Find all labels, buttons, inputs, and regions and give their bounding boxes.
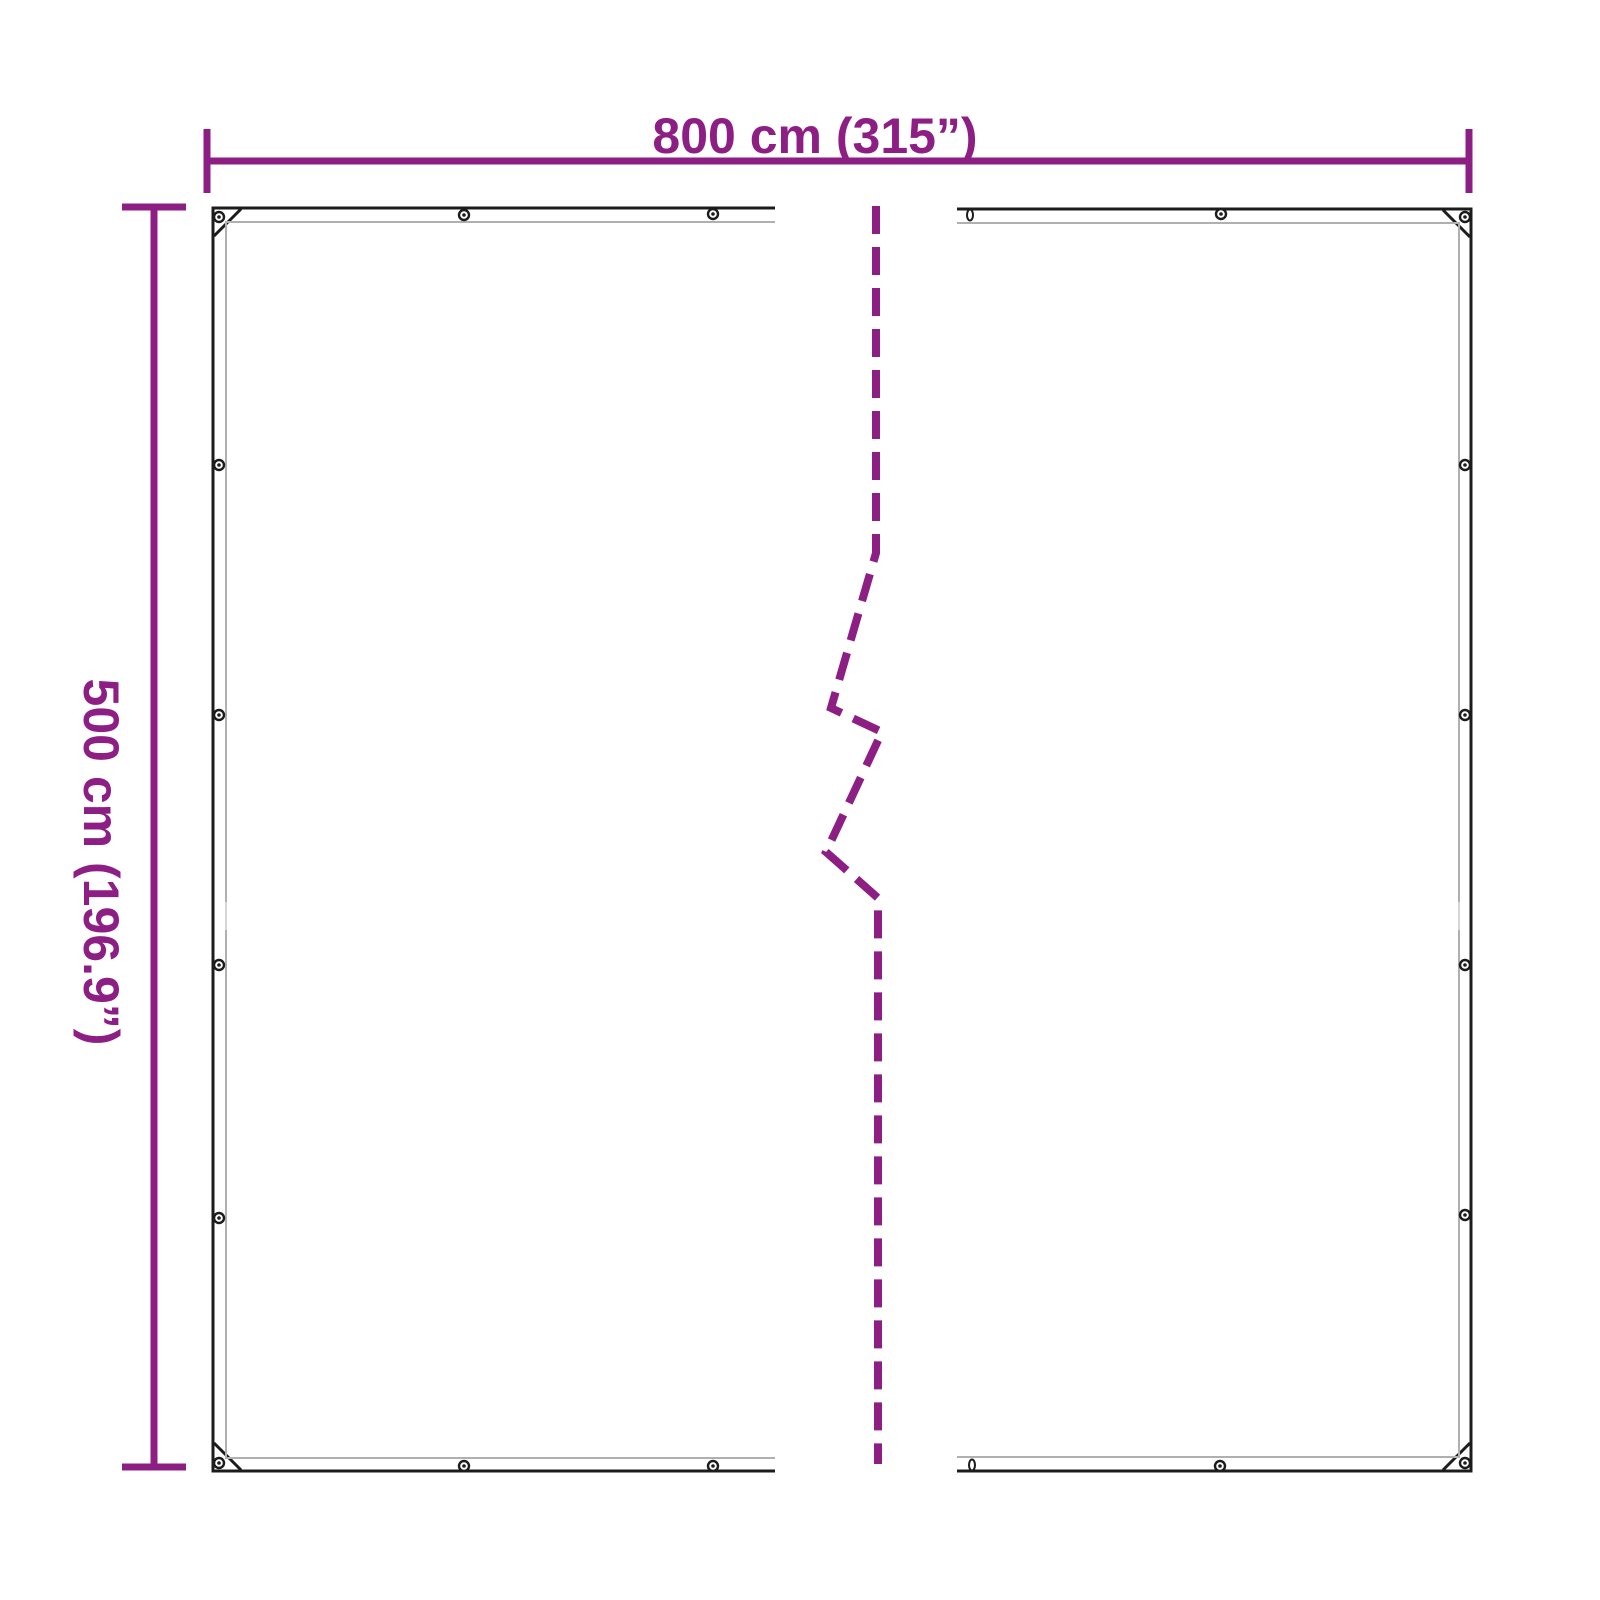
grommet <box>708 209 718 219</box>
grommet <box>1460 1210 1470 1220</box>
break-line <box>826 206 882 1464</box>
grommet <box>214 460 224 470</box>
tarp-right-hem <box>957 223 1459 1457</box>
tarp-left-outline <box>213 208 775 1471</box>
grommet <box>1460 460 1470 470</box>
tarp-right-panel <box>957 209 1471 1471</box>
grommet <box>214 1213 224 1223</box>
tarp-left-hem-line <box>226 222 775 1458</box>
diagram-canvas: 800 cm (315”) 500 cm (196.9”) <box>0 0 1600 1600</box>
grommet <box>214 960 224 970</box>
grommet <box>214 710 224 720</box>
grommet <box>214 212 224 222</box>
grommet-edge-oval <box>967 210 973 221</box>
grommet <box>459 1461 469 1471</box>
grommet <box>459 210 469 220</box>
grommet <box>1215 1461 1225 1471</box>
tarp-left-panel <box>213 208 775 1471</box>
tarp-right-outline <box>957 209 1471 1471</box>
grommet <box>1460 212 1470 222</box>
grommet <box>1216 209 1226 219</box>
grommet <box>214 1458 224 1468</box>
grommet <box>708 1461 718 1471</box>
tarp-right-hem-line <box>957 223 1459 1457</box>
grommet <box>1460 960 1470 970</box>
grommet <box>1460 710 1470 720</box>
height-dimension <box>122 207 186 1467</box>
grommet <box>1460 1458 1470 1468</box>
product-dimension-diagram: 800 cm (315”) 500 cm (196.9”) <box>0 0 1600 1600</box>
height-label-group: 500 cm (196.9”) <box>73 679 129 1046</box>
break-line-group <box>826 206 882 1464</box>
tarp-left-hem <box>226 222 775 1458</box>
height-dimension-label: 500 cm (196.9”) <box>73 679 129 1046</box>
grommets <box>214 209 1470 1471</box>
width-label-group: 800 cm (315”) <box>652 108 977 164</box>
width-dimension-label: 800 cm (315”) <box>652 108 977 164</box>
grommet-edge-oval <box>969 1460 975 1471</box>
